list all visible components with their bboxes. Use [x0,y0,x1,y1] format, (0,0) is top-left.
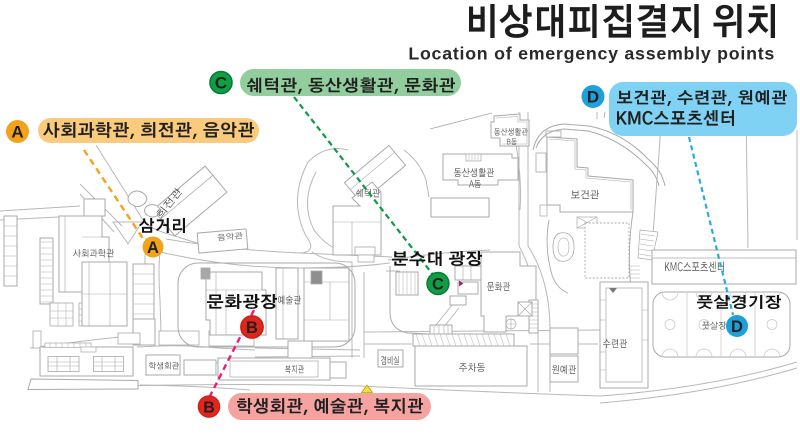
svg-text:C: C [215,74,227,93]
svg-text:B: B [246,319,258,337]
svg-text:D: D [731,318,743,336]
svg-text:B: B [203,400,215,417]
svg-text:C: C [432,275,444,293]
svg-text:Location of emergency assembly: Location of emergency assembly points [408,44,775,64]
svg-text:D: D [587,88,599,107]
svg-text:A: A [11,123,23,142]
svg-text:A: A [147,239,159,257]
